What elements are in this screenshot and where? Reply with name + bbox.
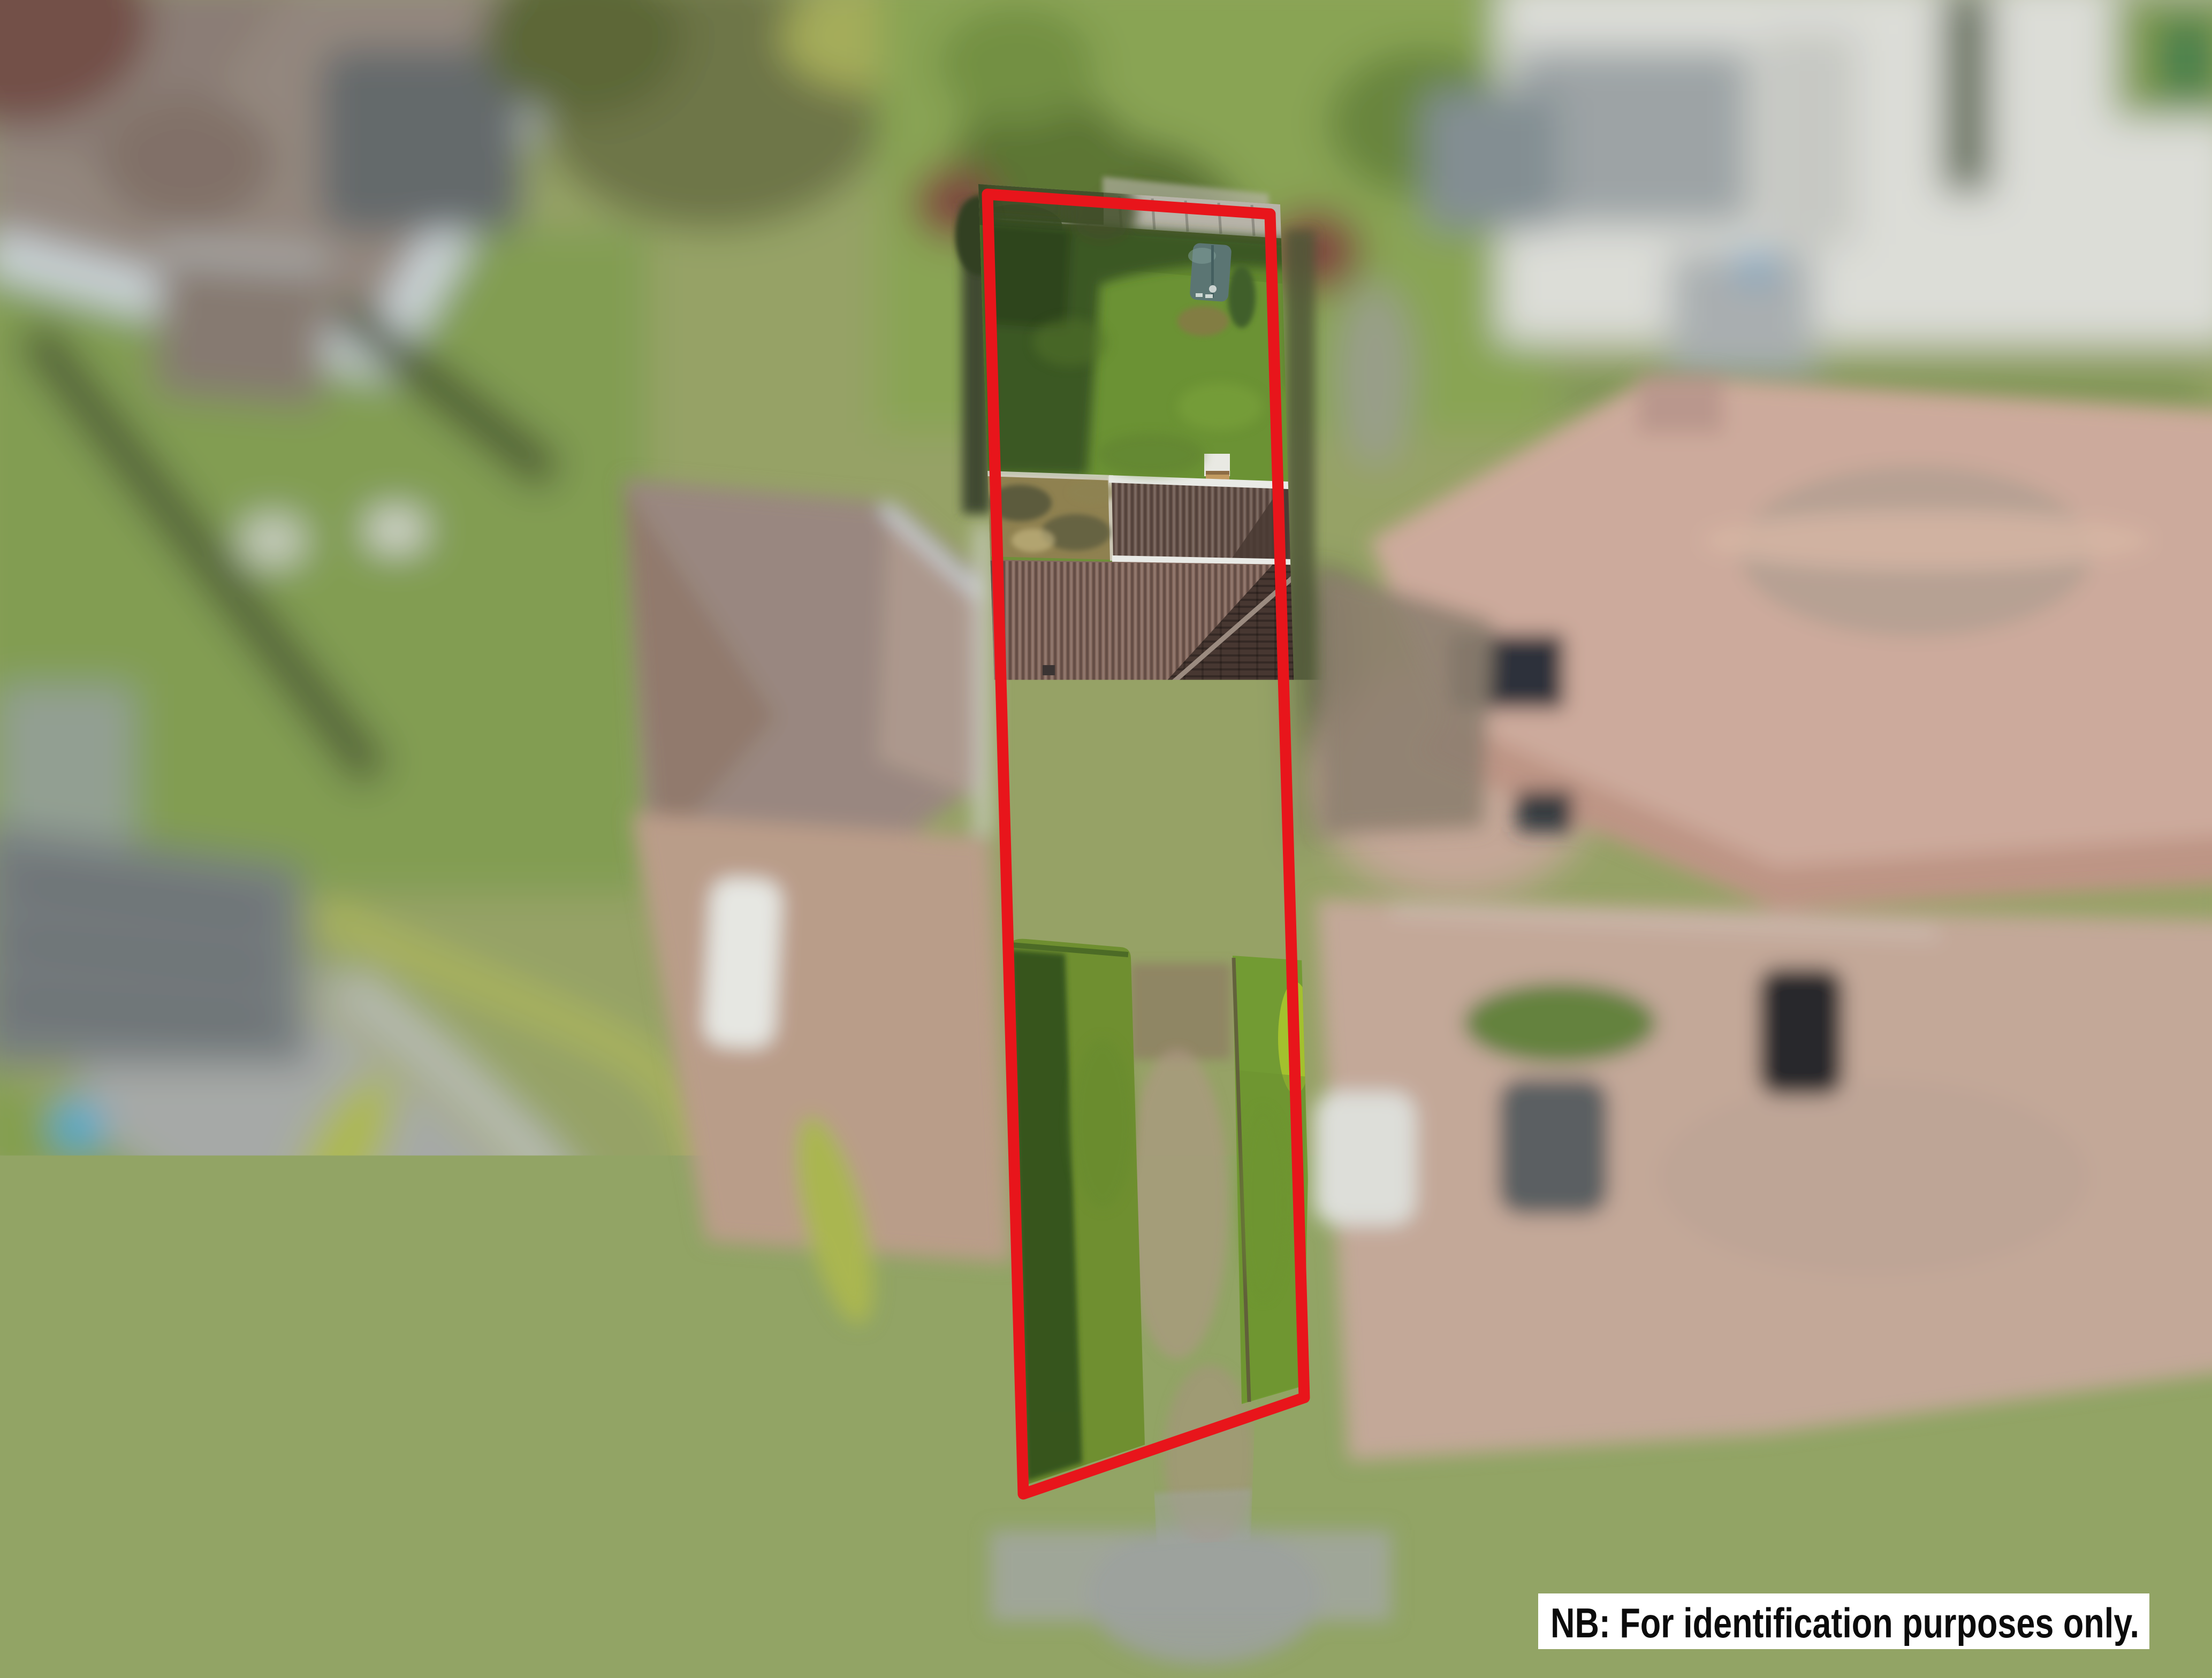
svg-text:NB: For identification purpose: NB: For identification purposes only. xyxy=(1550,1599,2139,1646)
